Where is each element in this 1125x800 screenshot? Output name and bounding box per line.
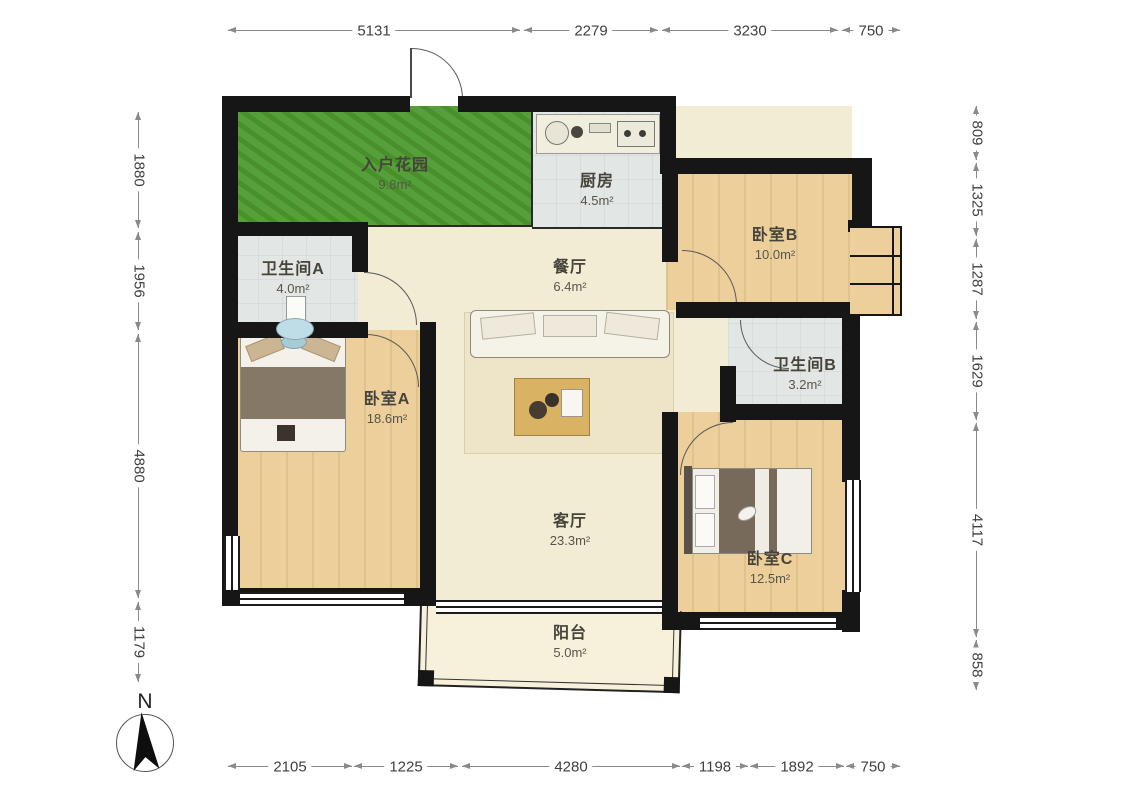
sofa-cushion-1 (480, 312, 536, 340)
wall-bedroom-b-top (660, 158, 872, 174)
wall-left (222, 96, 238, 606)
bathroom-a-basin-icon (276, 318, 314, 340)
dimension-bottom-4: 1198 (682, 766, 748, 767)
garden-dining-edge (366, 225, 532, 227)
wall-top-left (222, 96, 410, 112)
living-coffee-table (514, 378, 590, 436)
kitchen-dining-edge (532, 227, 662, 229)
bay-window-mullion-2 (850, 283, 900, 285)
dimension-left-1: 1880 (138, 112, 139, 228)
wall-balcony-right-block (662, 596, 678, 630)
dimension-bottom-6: 750 (846, 766, 900, 767)
dimension-left-3: 4880 (138, 334, 139, 598)
room-area-bathroom-b: 3.2m² (745, 377, 865, 393)
kitchen-vent-icon (589, 123, 611, 133)
table-decor-bowl-2 (545, 393, 559, 407)
table-decor-book (561, 389, 583, 417)
room-name-garden: 入户花园 (325, 156, 465, 176)
dimension-top-3: 3230 (662, 30, 838, 31)
dimension-value: 4280 (549, 759, 592, 776)
dimension-bottom-3: 4280 (462, 766, 680, 767)
living-sofa (470, 310, 670, 358)
dimension-value: 1225 (384, 759, 427, 776)
stove-burner-1 (624, 130, 631, 137)
bedroom-c-bed (692, 468, 812, 554)
bed-a-foot-tray (277, 425, 295, 441)
room-label-kitchen: 厨房 4.5m² (545, 172, 649, 209)
dimension-value: 1325 (969, 178, 986, 221)
dimension-right-1: 809 (976, 106, 977, 160)
kitchen-counter (536, 114, 660, 154)
room-area-dining: 6.4m² (510, 279, 630, 295)
room-area-bedroom-a: 18.6m² (327, 411, 447, 427)
dimension-right-6: 858 (976, 640, 977, 690)
dimension-value: 2105 (268, 759, 311, 776)
dimension-right-5: 4117 (976, 423, 977, 637)
dimension-value: 5131 (352, 23, 395, 40)
wall-bathroom-b-bottom (720, 404, 860, 420)
room-area-living: 23.3m² (510, 533, 630, 549)
wall-bedroom-c-left (662, 412, 678, 622)
bay-window-inner-line (892, 228, 894, 314)
dimension-value: 1956 (131, 259, 148, 302)
room-name-bedroom-b: 卧室B (715, 226, 835, 246)
room-label-bedroom-b: 卧室B 10.0m² (715, 226, 835, 263)
bed-c-blanket-stripe (755, 469, 769, 553)
room-name-bathroom-b: 卫生间B (745, 356, 865, 376)
dimension-right-3: 1287 (976, 239, 977, 319)
floor-plan-canvas: 5131 2279 3230 750 2105 1225 4280 1198 1… (0, 0, 1125, 800)
kitchen-stove-icon (617, 121, 655, 147)
room-area-bedroom-b: 10.0m² (715, 247, 835, 263)
room-area-kitchen: 4.5m² (545, 193, 649, 209)
room-name-bathroom-a: 卫生间A (233, 260, 353, 280)
dimension-top-4: 750 (842, 30, 900, 31)
window-bedroom-a-bottom (240, 592, 404, 606)
dimension-right-4: 1629 (976, 322, 977, 420)
balcony-corner-post-right (664, 677, 680, 693)
compass-north-label: N (130, 690, 160, 714)
dimension-value: 1198 (694, 759, 736, 776)
room-label-bedroom-a: 卧室A 18.6m² (327, 390, 447, 427)
dimension-value: 1880 (131, 148, 148, 191)
room-area-bedroom-c: 12.5m² (710, 571, 830, 587)
wall-top-right (458, 96, 676, 112)
dimension-bottom-5: 1892 (750, 766, 844, 767)
room-label-garden: 入户花园 9.8m² (325, 156, 465, 193)
dimension-value: 2279 (569, 23, 612, 40)
kitchen-faucet-icon (571, 126, 583, 138)
balcony-corner-post-left (418, 670, 434, 686)
living-balcony-window-door (436, 600, 662, 614)
room-label-dining: 餐厅 6.4m² (510, 258, 630, 295)
dimension-value: 4117 (969, 509, 986, 551)
dimension-value: 750 (853, 23, 888, 40)
wall-garden-bathroom-a-divider (222, 222, 366, 236)
bay-window-bedroom-b (850, 226, 902, 316)
window-bedroom-c-right (845, 480, 861, 592)
bay-window-mullion-1 (850, 255, 900, 257)
stove-burner-2 (639, 130, 646, 137)
bed-c-pillow-top (695, 475, 715, 509)
room-area-garden: 9.8m² (325, 177, 465, 193)
room-name-bedroom-a: 卧室A (327, 390, 447, 410)
kitchen-sink-icon (545, 121, 569, 145)
dimension-right-2: 1325 (976, 163, 977, 236)
dimension-value: 1287 (969, 257, 986, 300)
wall-bedroom-b-bottom (676, 302, 860, 318)
wall-bedroom-b-left (662, 158, 678, 262)
room-name-living: 客厅 (510, 512, 630, 532)
entrance-door-arc (412, 48, 463, 99)
room-label-bedroom-c: 卧室C 12.5m² (710, 550, 830, 587)
room-label-living: 客厅 23.3m² (510, 512, 630, 549)
room-name-bedroom-c: 卧室C (710, 550, 830, 570)
table-decor-bowl-1 (529, 401, 547, 419)
dimension-top-2: 2279 (524, 30, 658, 31)
dimension-top-1: 5131 (228, 30, 520, 31)
dimension-value: 1629 (969, 349, 986, 392)
dimension-value: 858 (969, 647, 986, 682)
room-name-dining: 餐厅 (510, 258, 630, 278)
room-label-balcony: 阳台 5.0m² (510, 624, 630, 661)
room-name-balcony: 阳台 (510, 624, 630, 644)
room-name-kitchen: 厨房 (545, 172, 649, 192)
window-bedroom-c-bottom (700, 616, 836, 630)
wall-bedroom-c-right-top (842, 412, 860, 482)
dimension-value: 1179 (131, 621, 148, 663)
bedroom-c-headboard (684, 466, 692, 554)
sofa-cushion-3 (604, 312, 660, 340)
bed-c-pillow-bottom (695, 513, 715, 547)
dimension-value: 4880 (131, 444, 148, 487)
room-area-balcony: 5.0m² (510, 645, 630, 661)
dimension-value: 750 (855, 759, 890, 776)
dimension-value: 1892 (775, 759, 818, 776)
dimension-bottom-2: 1225 (354, 766, 458, 767)
room-label-bathroom-b: 卫生间B 3.2m² (745, 356, 865, 393)
garden-kitchen-edge (531, 110, 533, 227)
dimension-value: 809 (969, 115, 986, 150)
sofa-cushion-2 (543, 315, 597, 337)
dimension-left-4: 1179 (138, 602, 139, 682)
dimension-left-2: 1956 (138, 232, 139, 330)
dimension-value: 3230 (728, 23, 771, 40)
wall-bedroom-a-right (420, 322, 436, 604)
window-bedroom-a-left (224, 536, 240, 590)
room-area-bathroom-a: 4.0m² (233, 281, 353, 297)
dimension-bottom-1: 2105 (228, 766, 352, 767)
room-label-bathroom-a: 卫生间A 4.0m² (233, 260, 353, 297)
wall-bathroom-a-right (352, 222, 368, 272)
